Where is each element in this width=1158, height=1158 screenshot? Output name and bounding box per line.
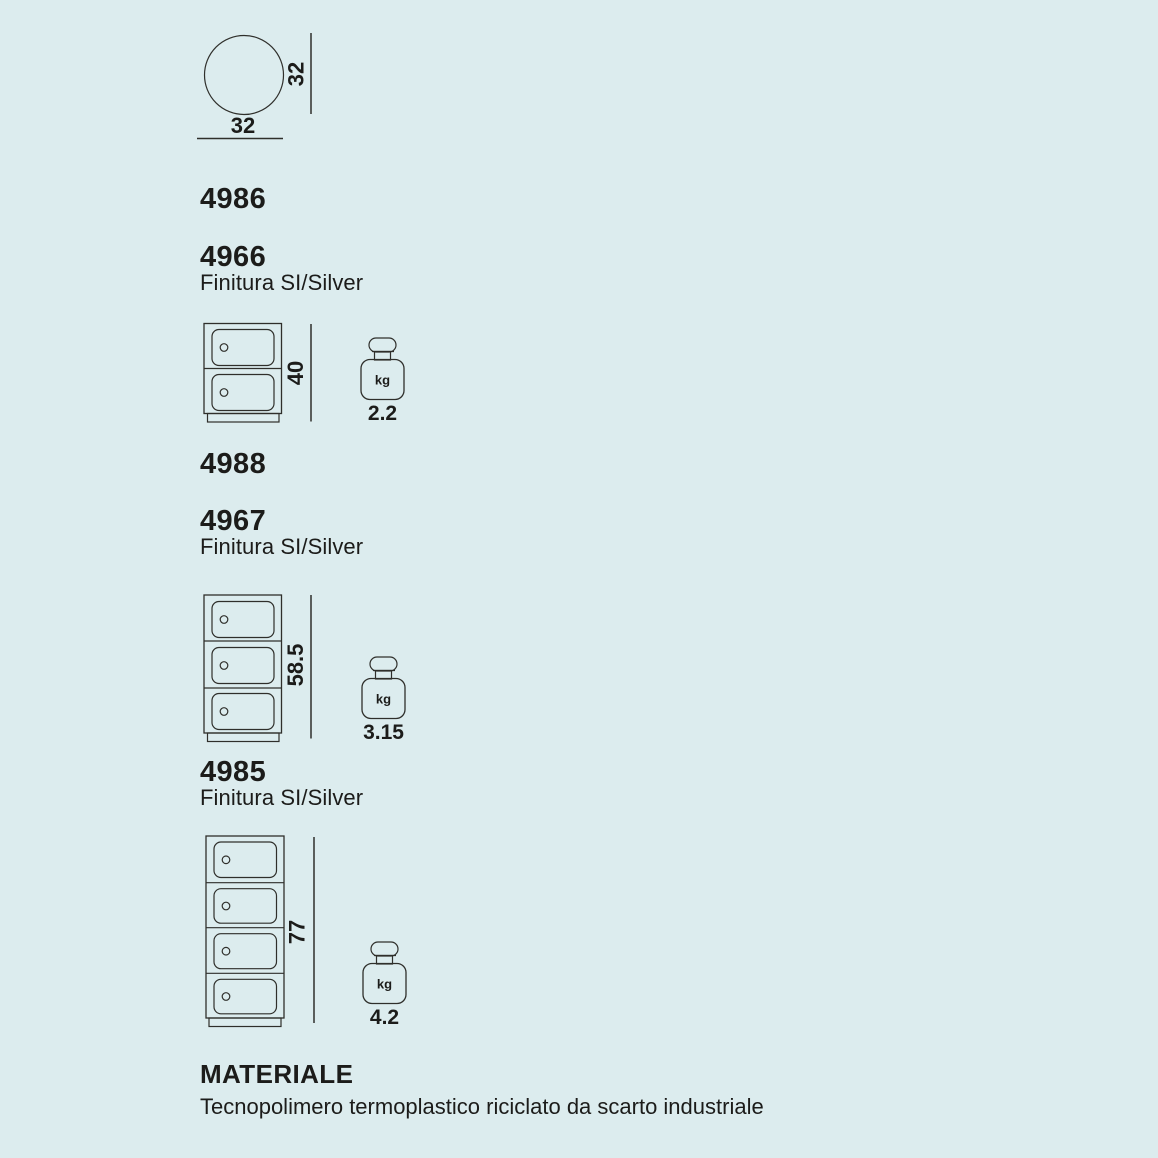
weight-cap: [370, 657, 397, 671]
weight-unit-label: kg: [376, 692, 391, 707]
weight-neck: [377, 956, 393, 965]
product-code-4966: 4966: [200, 243, 266, 272]
product-code-4986: 4986: [200, 185, 266, 214]
weight-icon: kg 4.2: [354, 934, 416, 1029]
drawer-front: [212, 330, 274, 366]
drawer-front: [212, 648, 274, 684]
drawer-knob: [222, 947, 230, 955]
drawer-front: [214, 979, 277, 1014]
material-description: Tecnopolimero termoplastico riciclato da…: [200, 1094, 764, 1120]
product-code-4985: 4985: [200, 758, 266, 787]
material-section-title: MATERIALE: [200, 1061, 353, 1087]
top-view-circle: [205, 36, 284, 115]
weight-value-label: 3.15: [363, 721, 404, 744]
drawer-knob: [220, 344, 228, 352]
unit-height-label: 40: [283, 361, 308, 385]
cabinet-outline: [204, 595, 282, 733]
drawer-knob: [220, 616, 228, 624]
drawer-front: [214, 889, 277, 924]
unit-drawing-3-drawers: 58.5: [195, 588, 330, 746]
unit-height-label: 58.5: [283, 644, 308, 687]
drawer-front: [214, 934, 277, 969]
weight-neck: [375, 352, 391, 361]
weight-value-label: 2.2: [368, 402, 397, 425]
drawer-front: [214, 842, 277, 878]
product-code-4967: 4967: [200, 507, 266, 536]
cabinet-base: [209, 1018, 281, 1027]
cabinet-base: [208, 414, 280, 423]
weight-neck: [376, 671, 392, 680]
drawer-knob: [220, 708, 228, 716]
weight-value-label: 4.2: [370, 1006, 399, 1029]
weight-unit-label: kg: [377, 977, 392, 992]
top-view-width-label: 32: [231, 113, 255, 138]
weight-cap: [369, 338, 396, 352]
drawer-front: [212, 375, 274, 411]
product-code-4988: 4988: [200, 450, 266, 479]
finish-label-4985: Finitura SI/Silver: [200, 787, 363, 809]
weight-icon: kg 3.15: [353, 649, 415, 744]
unit-drawing-4-drawers: 77: [195, 830, 335, 1032]
drawer-knob: [222, 856, 230, 864]
spec-sheet-page: 32 32 4986 4966 Finitura SI/Silver 40 kg…: [0, 0, 1158, 1158]
unit-height-label: 77: [285, 920, 310, 944]
cabinet-base: [208, 733, 280, 742]
drawer-front: [212, 602, 274, 638]
cabinet-outline: [206, 836, 284, 1018]
drawer-front: [212, 694, 274, 730]
drawer-knob: [222, 902, 230, 910]
weight-unit-label: kg: [375, 373, 390, 388]
finish-label-4966: Finitura SI/Silver: [200, 272, 363, 294]
top-view-diagram: 32 32: [190, 20, 330, 150]
top-view-height-label: 32: [284, 62, 309, 86]
weight-cap: [371, 942, 398, 956]
weight-icon: kg 2.2: [352, 330, 414, 425]
finish-label-4967: Finitura SI/Silver: [200, 536, 363, 558]
unit-drawing-2-drawers: 40: [195, 318, 330, 430]
drawer-knob: [220, 662, 228, 670]
drawer-knob: [220, 389, 228, 397]
drawer-knob: [222, 993, 230, 1001]
